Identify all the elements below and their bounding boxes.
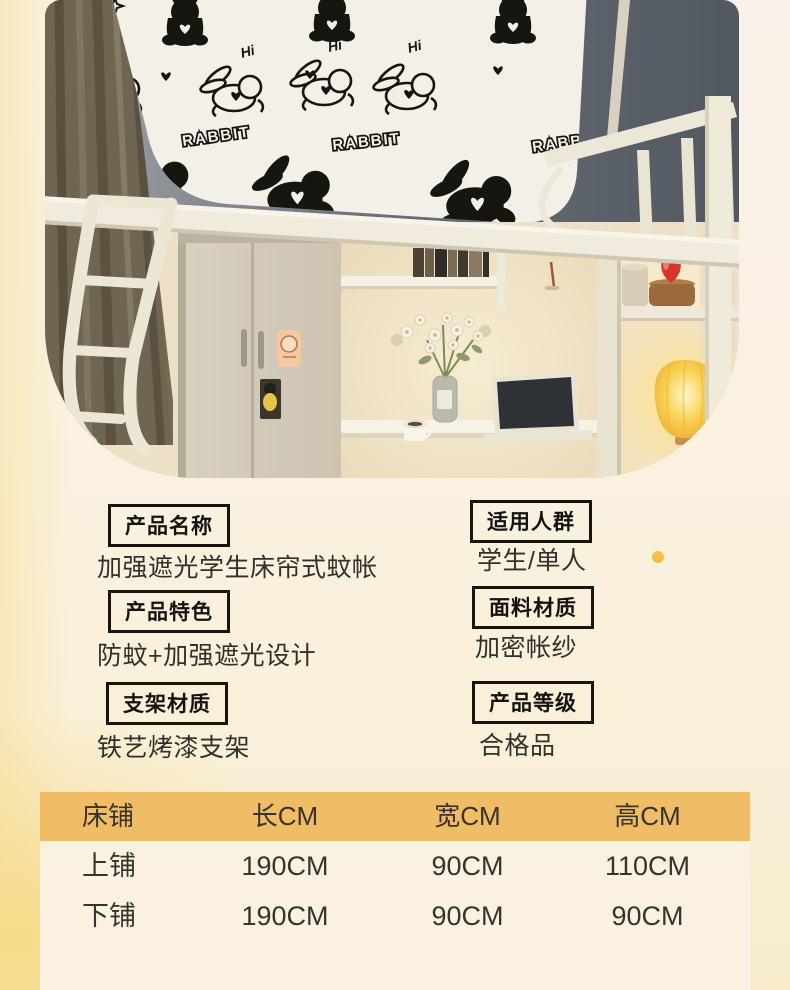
spec-label-product-grade: 产品等级 (472, 681, 594, 724)
cell-length: 190CM (180, 891, 390, 941)
spec-label-frame-material: 支架材质 (106, 682, 228, 725)
spec-label-product-feature: 产品特色 (108, 590, 230, 633)
decor-cylinder (622, 264, 648, 307)
cell-length: 190CM (180, 841, 390, 891)
spec-value-product-grade: 合格品 (479, 726, 556, 762)
cell-height: 90CM (545, 891, 750, 941)
spec-label-fabric-material: 面料材质 (472, 586, 594, 629)
column-header-length: 长CM (180, 792, 390, 841)
spec-label-product-name: 产品名称 (108, 504, 230, 547)
spec-value-target-users: 学生/单人 (477, 541, 586, 577)
wardrobe-handle (258, 331, 264, 369)
table-row-upper-bunk: 上铺 190CM 90CM 110CM (40, 841, 750, 891)
cell-bed: 下铺 (40, 891, 180, 941)
cell-bed: 上铺 (40, 841, 180, 891)
desk-niche (341, 230, 597, 478)
column-header-width: 宽CM (390, 792, 545, 841)
bunk-bed-scene: Hi Hi Hi Hi RABBIT RABBIT RABBIT (45, 0, 739, 478)
column-header-height: 高CM (545, 792, 750, 841)
product-detail-page: { "photo": { "pattern": { "brand_text": … (0, 0, 790, 990)
spec-label-target-users: 适用人群 (470, 500, 592, 543)
note-sticker (277, 330, 301, 367)
size-table: 床铺 长CM 宽CM 高CM 上铺 190CM 90CM 110CM 下铺 19… (40, 792, 750, 990)
product-photo: Hi Hi Hi Hi RABBIT RABBIT RABBIT (45, 0, 739, 478)
cell-width: 90CM (390, 891, 545, 941)
table-row-lower-bunk: 下铺 190CM 90CM 90CM (40, 891, 750, 941)
spec-value-product-feature: 防蚊+加强遮光设计 (97, 636, 316, 672)
shelf-board (341, 276, 501, 286)
shelf-post (597, 240, 620, 478)
spec-value-product-name: 加强遮光学生床帘式蚊帐 (97, 548, 378, 584)
wardrobe-handle (241, 329, 247, 367)
spec-value-frame-material: 铁艺烤漆支架 (97, 728, 250, 764)
spec-value-fabric-material: 加密帐纱 (475, 628, 577, 664)
wardrobe (178, 230, 341, 478)
column-header-bed: 床铺 (40, 792, 180, 841)
cell-width: 90CM (390, 841, 545, 891)
cat-sticker (260, 379, 281, 419)
size-table-header: 床铺 长CM 宽CM 高CM (40, 792, 750, 841)
cell-height: 110CM (545, 841, 750, 891)
accent-dot (652, 551, 664, 563)
